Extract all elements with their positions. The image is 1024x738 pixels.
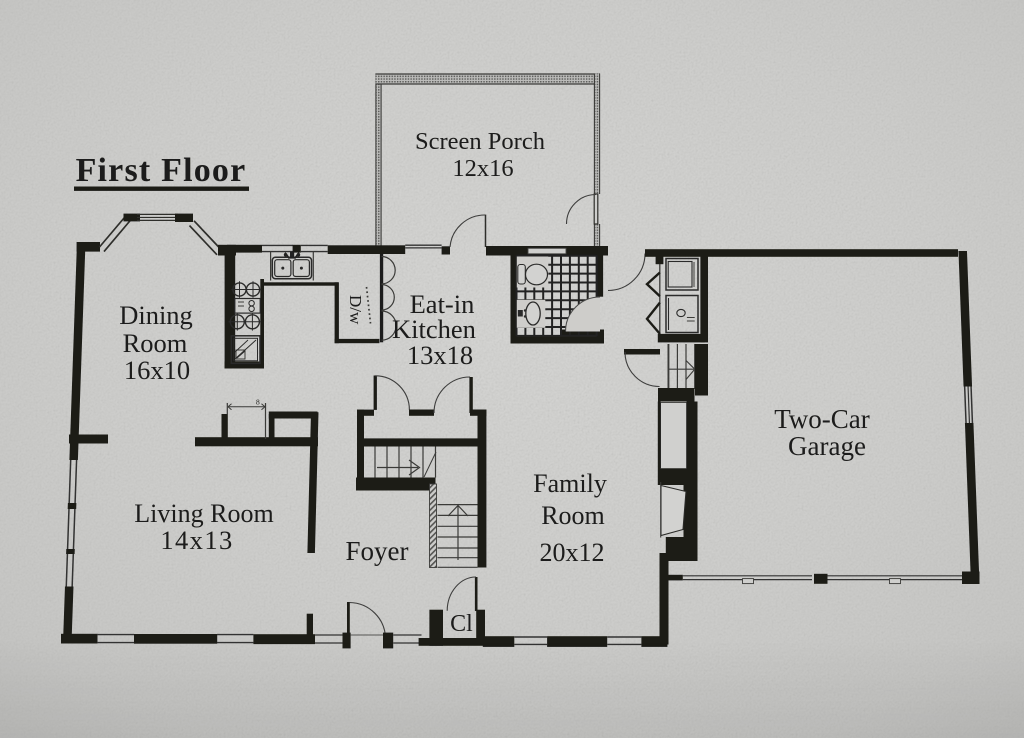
svg-text:13x18: 13x18 (407, 340, 473, 370)
svg-text:16x10: 16x10 (124, 355, 190, 385)
svg-text:D/w: D/w (346, 295, 365, 325)
svg-text:Dining: Dining (119, 300, 193, 330)
svg-text:14x13: 14x13 (160, 525, 233, 555)
svg-text:Screen Porch: Screen Porch (415, 128, 545, 155)
svg-text:Foyer: Foyer (346, 536, 409, 566)
svg-text:Cl: Cl (450, 611, 473, 637)
svg-text:Family: Family (533, 469, 607, 498)
svg-text:12x16: 12x16 (452, 155, 513, 182)
svg-text:First Floor: First Floor (76, 152, 247, 189)
svg-text:Living Room: Living Room (134, 499, 273, 528)
svg-text:8: 8 (256, 398, 260, 407)
svg-text:Garage: Garage (788, 431, 866, 461)
svg-text:Room: Room (123, 328, 188, 358)
svg-text:20x12: 20x12 (540, 538, 605, 567)
svg-text:Room: Room (541, 501, 605, 530)
svg-text:Two-Car: Two-Car (774, 404, 870, 434)
